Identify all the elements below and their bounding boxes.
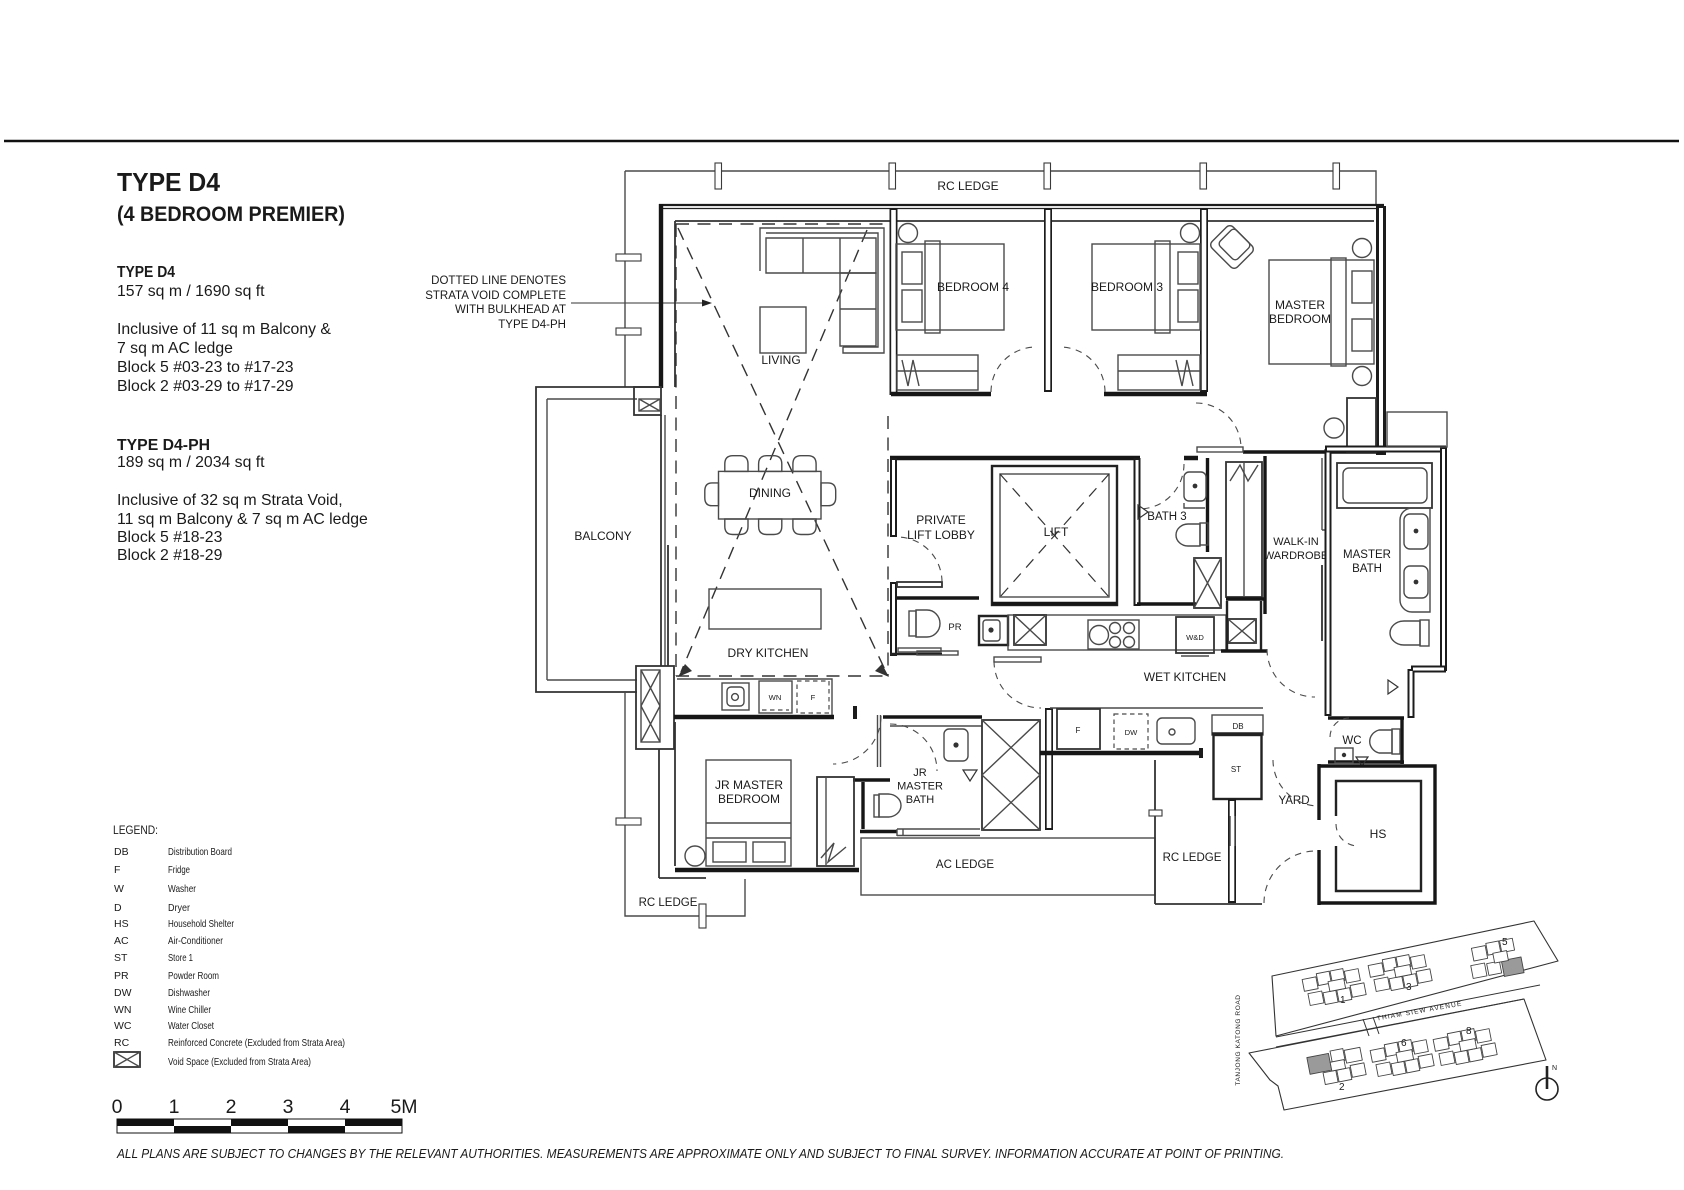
svg-text:BEDROOM: BEDROOM: [1269, 312, 1331, 326]
svg-text:Reinforced Concrete (Excluded: Reinforced Concrete (Excluded from Strat…: [168, 1037, 345, 1049]
svg-text:DW: DW: [1125, 728, 1138, 737]
svg-text:1: 1: [1340, 995, 1346, 1006]
svg-text:TYPE D4-PH: TYPE D4-PH: [498, 319, 566, 331]
svg-text:Water Closet: Water Closet: [168, 1020, 214, 1032]
svg-text:0: 0: [112, 1096, 123, 1118]
svg-text:W&D: W&D: [1186, 633, 1204, 642]
svg-text:(4 BEDROOM PREMIER): (4 BEDROOM PREMIER): [117, 203, 345, 226]
svg-text:Inclusive of 32 sq m Strata Vo: Inclusive of 32 sq m Strata Void,: [117, 492, 343, 509]
svg-text:HS: HS: [114, 918, 129, 930]
svg-text:5: 5: [1502, 937, 1508, 948]
svg-text:BEDROOM 4: BEDROOM 4: [937, 280, 1009, 294]
svg-text:RC LEDGE: RC LEDGE: [937, 179, 998, 193]
svg-text:TANJONG KATONG ROAD: TANJONG KATONG ROAD: [1235, 994, 1242, 1085]
svg-text:7 sq m AC ledge: 7 sq m AC ledge: [117, 340, 233, 357]
svg-text:LIVING: LIVING: [761, 353, 800, 367]
svg-text:HS: HS: [1370, 827, 1387, 841]
svg-text:Dryer: Dryer: [168, 902, 190, 914]
svg-text:LIFT: LIFT: [1044, 525, 1069, 539]
svg-text:1: 1: [169, 1096, 180, 1118]
svg-text:TYPE D4: TYPE D4: [117, 264, 175, 281]
svg-text:Fridge: Fridge: [168, 864, 190, 876]
svg-text:WET KITCHEN: WET KITCHEN: [1144, 670, 1226, 684]
svg-text:RC LEDGE: RC LEDGE: [639, 897, 698, 909]
svg-text:RC LEDGE: RC LEDGE: [1163, 852, 1222, 864]
svg-text:F: F: [811, 693, 816, 702]
svg-text:Washer: Washer: [168, 883, 196, 895]
svg-text:BEDROOM 3: BEDROOM 3: [1091, 280, 1163, 294]
svg-text:BATH: BATH: [1352, 563, 1382, 575]
svg-text:ST: ST: [114, 952, 128, 964]
svg-text:RC: RC: [114, 1037, 130, 1049]
svg-text:JR: JR: [913, 767, 927, 779]
svg-text:Block 2 #18-29: Block 2 #18-29: [117, 547, 223, 564]
svg-text:W: W: [114, 883, 124, 895]
svg-text:DB: DB: [114, 846, 129, 858]
svg-text:WN: WN: [114, 1004, 132, 1016]
svg-text:STRATA VOID COMPLETE: STRATA VOID COMPLETE: [425, 290, 566, 302]
svg-text:D: D: [114, 902, 122, 914]
svg-text:Air-Conditioner: Air-Conditioner: [168, 935, 223, 947]
svg-text:N: N: [1552, 1065, 1557, 1072]
svg-text:DOTTED LINE DENOTES: DOTTED LINE DENOTES: [431, 275, 566, 287]
svg-text:Block 2 #03-29 to #17-29: Block 2 #03-29 to #17-29: [117, 378, 294, 395]
svg-text:PRIVATE: PRIVATE: [916, 513, 966, 527]
svg-text:WARDROBE: WARDROBE: [1264, 550, 1328, 562]
svg-text:DB: DB: [1232, 722, 1243, 731]
svg-text:BATH: BATH: [906, 794, 935, 806]
svg-text:WC: WC: [114, 1020, 132, 1032]
svg-text:WN: WN: [769, 693, 782, 702]
svg-text:YARD: YARD: [1278, 795, 1309, 807]
svg-text:ST: ST: [1231, 765, 1241, 774]
svg-text:MASTER: MASTER: [897, 781, 943, 793]
svg-text:DINING: DINING: [749, 486, 791, 500]
svg-text:DW: DW: [114, 987, 132, 999]
svg-text:3: 3: [283, 1096, 294, 1118]
svg-text:AC: AC: [114, 935, 129, 947]
svg-text:TYPE D4: TYPE D4: [117, 169, 221, 197]
svg-text:Void Space (Excluded from Stra: Void Space (Excluded from Strata Area): [168, 1056, 311, 1068]
svg-text:Block 5 #18-23: Block 5 #18-23: [117, 529, 223, 546]
svg-text:WALK-IN: WALK-IN: [1273, 536, 1318, 548]
svg-text:MASTER: MASTER: [1343, 549, 1391, 561]
svg-text:BATH 3: BATH 3: [1147, 511, 1186, 523]
svg-text:TYPE D4-PH: TYPE D4-PH: [117, 437, 210, 454]
svg-text:2: 2: [226, 1096, 237, 1118]
svg-text:4: 4: [340, 1096, 351, 1118]
svg-text:JR MASTER: JR MASTER: [715, 778, 783, 792]
svg-text:157 sq m / 1690 sq ft: 157 sq m / 1690 sq ft: [117, 283, 265, 300]
svg-text:Block 5 #03-23 to #17-23: Block 5 #03-23 to #17-23: [117, 359, 294, 376]
svg-text:8: 8: [1466, 1026, 1472, 1037]
svg-text:WC: WC: [1342, 735, 1361, 747]
svg-text:Household Shelter: Household Shelter: [168, 918, 234, 930]
svg-text:PR: PR: [948, 622, 961, 633]
svg-text:LEGEND:: LEGEND:: [113, 825, 158, 837]
svg-text:BEDROOM: BEDROOM: [718, 792, 780, 806]
svg-text:Powder Room: Powder Room: [168, 970, 219, 982]
svg-text:ALL PLANS ARE SUBJECT TO CHANG: ALL PLANS ARE SUBJECT TO CHANGES BY THE …: [116, 1147, 1284, 1161]
svg-text:189 sq m / 2034 sq ft: 189 sq m / 2034 sq ft: [117, 454, 265, 471]
svg-text:Wine Chiller: Wine Chiller: [168, 1004, 211, 1016]
svg-text:Dishwasher: Dishwasher: [168, 987, 210, 999]
svg-text:Store 1: Store 1: [168, 952, 193, 964]
svg-text:BALCONY: BALCONY: [574, 529, 631, 543]
svg-text:3: 3: [1406, 982, 1412, 993]
svg-text:F: F: [114, 864, 120, 876]
svg-text:6: 6: [1401, 1038, 1407, 1049]
svg-text:5M: 5M: [390, 1096, 417, 1118]
svg-text:Distribution Board: Distribution Board: [168, 846, 232, 858]
svg-text:WITH BULKHEAD AT: WITH BULKHEAD AT: [455, 304, 566, 316]
svg-text:DRY KITCHEN: DRY KITCHEN: [728, 646, 809, 660]
svg-text:11 sq m Balcony & 7 sq m AC le: 11 sq m Balcony & 7 sq m AC ledge: [117, 511, 368, 528]
svg-text:MASTER: MASTER: [1275, 298, 1325, 312]
svg-text:F: F: [1076, 726, 1081, 735]
svg-text:PR: PR: [114, 970, 129, 982]
svg-text:LIFT LOBBY: LIFT LOBBY: [907, 528, 975, 542]
svg-text:Inclusive of 11 sq m Balcony &: Inclusive of 11 sq m Balcony &: [117, 321, 331, 338]
svg-text:AC LEDGE: AC LEDGE: [936, 859, 994, 871]
svg-text:2: 2: [1339, 1082, 1345, 1093]
